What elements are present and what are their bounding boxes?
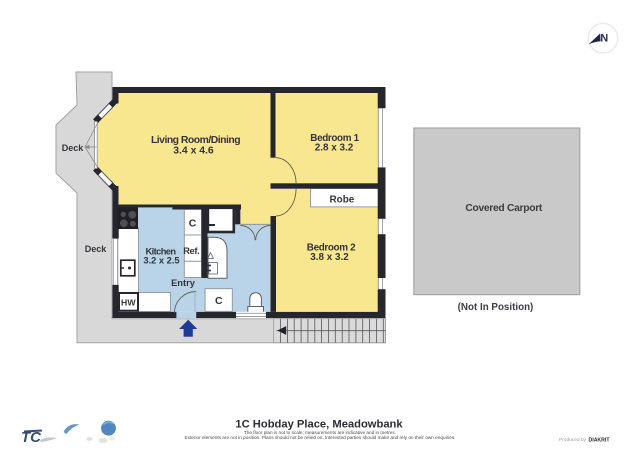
- svg-text:Exterior elements are not in p: Exterior elements are not in position. P…: [185, 435, 456, 440]
- svg-text:N: N: [600, 32, 608, 44]
- svg-text:Covered Carport: Covered Carport: [465, 203, 543, 214]
- svg-text:3.8 x 3.2: 3.8 x 3.2: [310, 252, 349, 263]
- svg-text:Entry: Entry: [171, 278, 196, 288]
- svg-text:(Not In Position): (Not In Position): [458, 302, 534, 313]
- svg-text:Living Room/Dining: Living Room/Dining: [151, 135, 240, 146]
- svg-text:C: C: [189, 218, 197, 230]
- svg-text:Deck: Deck: [85, 244, 108, 254]
- svg-text:Robe: Robe: [330, 195, 355, 206]
- svg-text:Deck: Deck: [62, 143, 85, 153]
- svg-text:DIAKRIT: DIAKRIT: [589, 437, 611, 443]
- svg-text:C: C: [215, 295, 223, 307]
- svg-text:1C Hobday Place, Meadowbank: 1C Hobday Place, Meadowbank: [235, 418, 403, 430]
- svg-text:3.2 x 2.5: 3.2 x 2.5: [143, 255, 179, 265]
- svg-text:3.4 x 4.6: 3.4 x 4.6: [173, 146, 214, 157]
- svg-text:2.8 x 3.2: 2.8 x 3.2: [315, 142, 354, 153]
- svg-text:HW: HW: [121, 297, 136, 307]
- svg-text:Ref.: Ref.: [183, 246, 199, 256]
- svg-text:Produced by: Produced by: [559, 437, 587, 443]
